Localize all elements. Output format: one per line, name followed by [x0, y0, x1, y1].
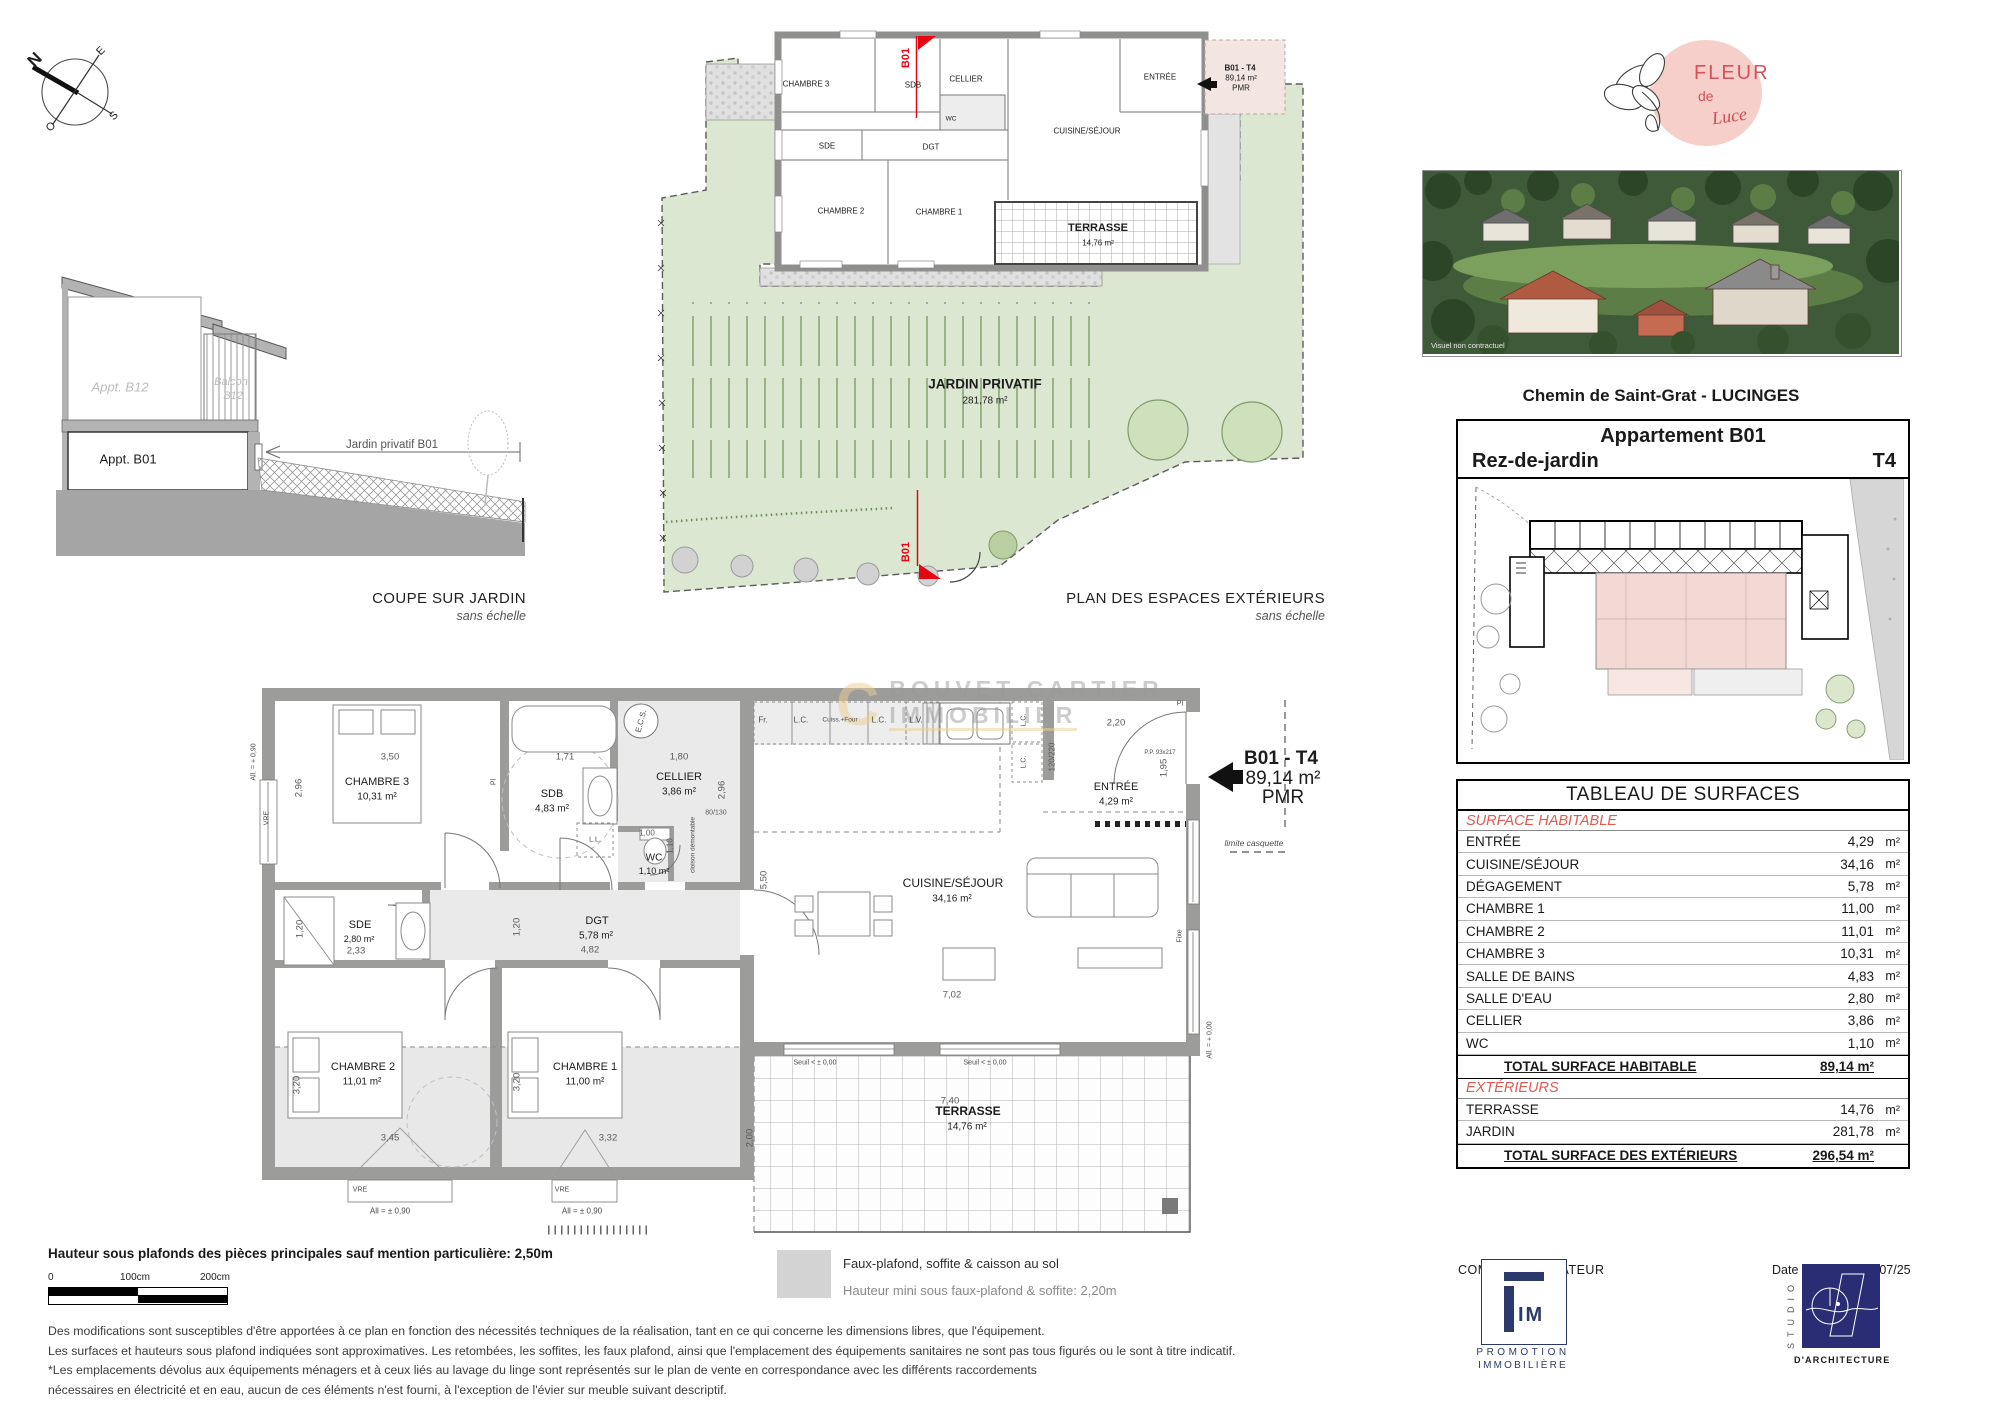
surface-row-value: 296,54 m² [1784, 1148, 1874, 1163]
plan-sheet: { "colors": {"red":"#e30613","table_red"… [0, 0, 2000, 1413]
watermark-line1: BOUVET CARTIER [889, 676, 1163, 702]
fim-im-text: IM [1518, 1304, 1544, 1327]
surface-row-unit: m² [1874, 924, 1900, 938]
surface-table-row: ENTRÉE 4,29 m² [1458, 831, 1908, 853]
surface-row-value: 1,10 [1814, 1036, 1874, 1051]
surface-row-unit: m² [1874, 1036, 1900, 1050]
surface-row-unit: m² [1874, 947, 1900, 961]
surface-row-value: 10,31 [1814, 946, 1874, 961]
surface-table-row: SALLE DE BAINS 4,83 m² [1458, 965, 1908, 987]
surface-row-label: CHAMBRE 3 [1466, 946, 1814, 961]
surface-row-label: CHAMBRE 1 [1466, 901, 1814, 916]
surface-row-value: 11,01 [1814, 924, 1874, 939]
apartment-type: T4 [1873, 450, 1896, 473]
surface-row-label: ENTRÉE [1466, 834, 1814, 849]
scale-bar [48, 1287, 228, 1305]
studio-architecture-logo [1802, 1264, 1880, 1348]
fim-f-stem-icon [1504, 1286, 1514, 1332]
fim-logo: IM [1481, 1259, 1567, 1345]
surface-row-unit: m² [1874, 1125, 1900, 1139]
ceiling-height-note: Hauteur sous plafonds des pièces princip… [48, 1246, 553, 1261]
apartment-box-header: Appartement B01 Rez-de-jardin T4 [1458, 421, 1908, 479]
flower-icon [1594, 42, 1704, 147]
apartment-title: Appartement B01 [1458, 425, 1908, 448]
photo-illustration [1423, 171, 1899, 354]
surface-row-label: SALLE DE BAINS [1466, 969, 1814, 984]
exterior-plan-subtitle: sans échelle [1005, 609, 1325, 623]
surface-row-unit: m² [1874, 969, 1900, 983]
surface-table-row: CHAMBRE 1 11,00 m² [1458, 898, 1908, 920]
legend-swatch [777, 1250, 831, 1298]
surface-row-value: 4,29 [1814, 834, 1874, 849]
surface-row-value: 34,16 [1814, 857, 1874, 872]
exterior-plan-drawing [658, 31, 1303, 592]
surface-row-unit: m² [1874, 857, 1900, 871]
exterior-plan-caption: PLAN DES ESPACES EXTÉRIEURS sans échelle [1005, 590, 1325, 623]
surface-row-value: 3,86 [1814, 1013, 1874, 1028]
surface-table-row: TOTAL SURFACE HABITABLE 89,14 m² [1458, 1055, 1908, 1079]
surface-row-label: CUISINE/SÉJOUR [1466, 857, 1814, 872]
surface-row-unit: m² [1874, 902, 1900, 916]
surface-row-value: 4,83 [1814, 969, 1874, 984]
coupe-caption: COUPE SUR JARDIN sans échelle [240, 590, 526, 623]
surface-table-row: DÉGAGEMENT 5,78 m² [1458, 876, 1908, 898]
surface-table: TABLEAU DE SURFACES SURFACE HABITABLE EN… [1456, 779, 1910, 1169]
surface-row-label: TOTAL SURFACE DES EXTÉRIEURS [1466, 1148, 1784, 1163]
logo-text-fleur: FLEUR [1694, 62, 1770, 85]
surface-row-unit: m² [1874, 879, 1900, 893]
surface-row-label: CELLIER [1466, 1013, 1814, 1028]
surface-table-title: TABLEAU DE SURFACES [1458, 781, 1908, 811]
coupe-title: COUPE SUR JARDIN [240, 590, 526, 607]
surface-table-rows: SURFACE HABITABLE ENTRÉE 4,29 m² CUISINE… [1458, 811, 1908, 1167]
surface-table-row: JARDIN 281,78 m² [1458, 1121, 1908, 1143]
coupe-drawing [56, 277, 525, 556]
surface-row-value: 5,78 [1814, 879, 1874, 894]
disclaimer-line: Les surfaces et hauteurs sous plafond in… [48, 1342, 1058, 1362]
logo-text-de: de [1698, 88, 1714, 104]
compass-rose [33, 55, 112, 125]
studio-logo-art-icon [1802, 1264, 1880, 1348]
watermark-line2: IMMOBILIER [889, 702, 1163, 728]
fleur-de-luce-logo: FLEUR de Luce [1594, 22, 1784, 152]
bouvet-cartier-logo-icon: C [836, 676, 879, 734]
fim-f-bar-icon [1504, 1272, 1544, 1281]
surface-row-value: 281,78 [1814, 1124, 1874, 1139]
surface-table-row: TERRASSE 14,76 m² [1458, 1099, 1908, 1121]
surface-row-label: WC [1466, 1036, 1814, 1051]
aerial-photo: Visuel non contractuel [1422, 170, 1902, 357]
surface-row-label: CHAMBRE 2 [1466, 924, 1814, 939]
surface-table-row: EXTÉRIEURS [1458, 1079, 1908, 1099]
surface-row-value: 89,14 m² [1784, 1059, 1874, 1074]
surface-row-value: 2,80 [1814, 991, 1874, 1006]
exterior-plan-title: PLAN DES ESPACES EXTÉRIEURS [1005, 590, 1325, 607]
surface-row-unit: m² [1874, 1014, 1900, 1028]
surface-row-label: SURFACE HABITABLE [1466, 813, 1814, 829]
main-plan-drawing [260, 688, 1285, 1232]
surface-table-row: CUISINE/SÉJOUR 34,16 m² [1458, 853, 1908, 875]
surface-table-row: CHAMBRE 2 11,01 m² [1458, 921, 1908, 943]
surface-row-label: TOTAL SURFACE HABITABLE [1466, 1059, 1784, 1074]
watermark: C BOUVET CARTIER IMMOBILIER [836, 676, 1164, 734]
surface-table-row: CHAMBRE 3 10,31 m² [1458, 943, 1908, 965]
surface-table-row: CELLIER 3,86 m² [1458, 1010, 1908, 1032]
site-plan [1458, 479, 1904, 760]
legend-line1: Faux-plafond, soffite & caisson au sol [843, 1256, 1059, 1271]
surface-row-label: EXTÉRIEURS [1466, 1080, 1814, 1096]
surface-row-unit: m² [1874, 991, 1900, 1005]
scale-200: 200cm [200, 1272, 230, 1283]
photo-watermark: Visuel non contractuel [1431, 341, 1505, 350]
address-caption: Chemin de Saint-Grat - LUCINGES [1422, 386, 1900, 406]
surface-row-unit: m² [1874, 1103, 1900, 1117]
surface-table-row: WC 1,10 m² [1458, 1033, 1908, 1055]
surface-row-value: 14,76 [1814, 1102, 1874, 1117]
surface-row-label: TERRASSE [1466, 1102, 1814, 1117]
surface-table-row: SALLE D'EAU 2,80 m² [1458, 988, 1908, 1010]
fim-promotion: PROMOTION [1472, 1347, 1574, 1358]
disclaimer-line: nécessaires en électricité et en eau, au… [48, 1381, 1058, 1401]
surface-row-label: DÉGAGEMENT [1466, 879, 1814, 894]
disclaimer-line: Des modifications sont susceptibles d'êt… [48, 1322, 1058, 1342]
scale-100: 100cm [120, 1272, 150, 1283]
scale-0: 0 [48, 1272, 54, 1283]
studio-caption: D'ARCHITECTURE [1794, 1355, 1890, 1365]
surface-row-unit: m² [1874, 835, 1900, 849]
apartment-floor: Rez-de-jardin [1472, 450, 1599, 473]
surface-table-row: TOTAL SURFACE DES EXTÉRIEURS 296,54 m² [1458, 1144, 1908, 1167]
fim-immobiliere: IMMOBILIÈRE [1472, 1360, 1574, 1371]
legend-line2: Hauteur mini sous faux-plafond & soffite… [843, 1283, 1117, 1298]
apartment-box: Appartement B01 Rez-de-jardin T4 [1456, 419, 1910, 764]
surface-row-label: JARDIN [1466, 1124, 1814, 1139]
coupe-subtitle: sans échelle [240, 609, 526, 623]
surface-row-value: 11,00 [1814, 901, 1874, 916]
surface-table-row: SURFACE HABITABLE [1458, 811, 1908, 831]
surface-row-label: SALLE D'EAU [1466, 991, 1814, 1006]
disclaimer-text: Des modifications sont susceptibles d'êt… [48, 1322, 1058, 1400]
disclaimer-line: *Les emplacements dévolus aux équipement… [48, 1361, 1058, 1381]
studio-vertical-text: STUDIO [1786, 1263, 1796, 1349]
